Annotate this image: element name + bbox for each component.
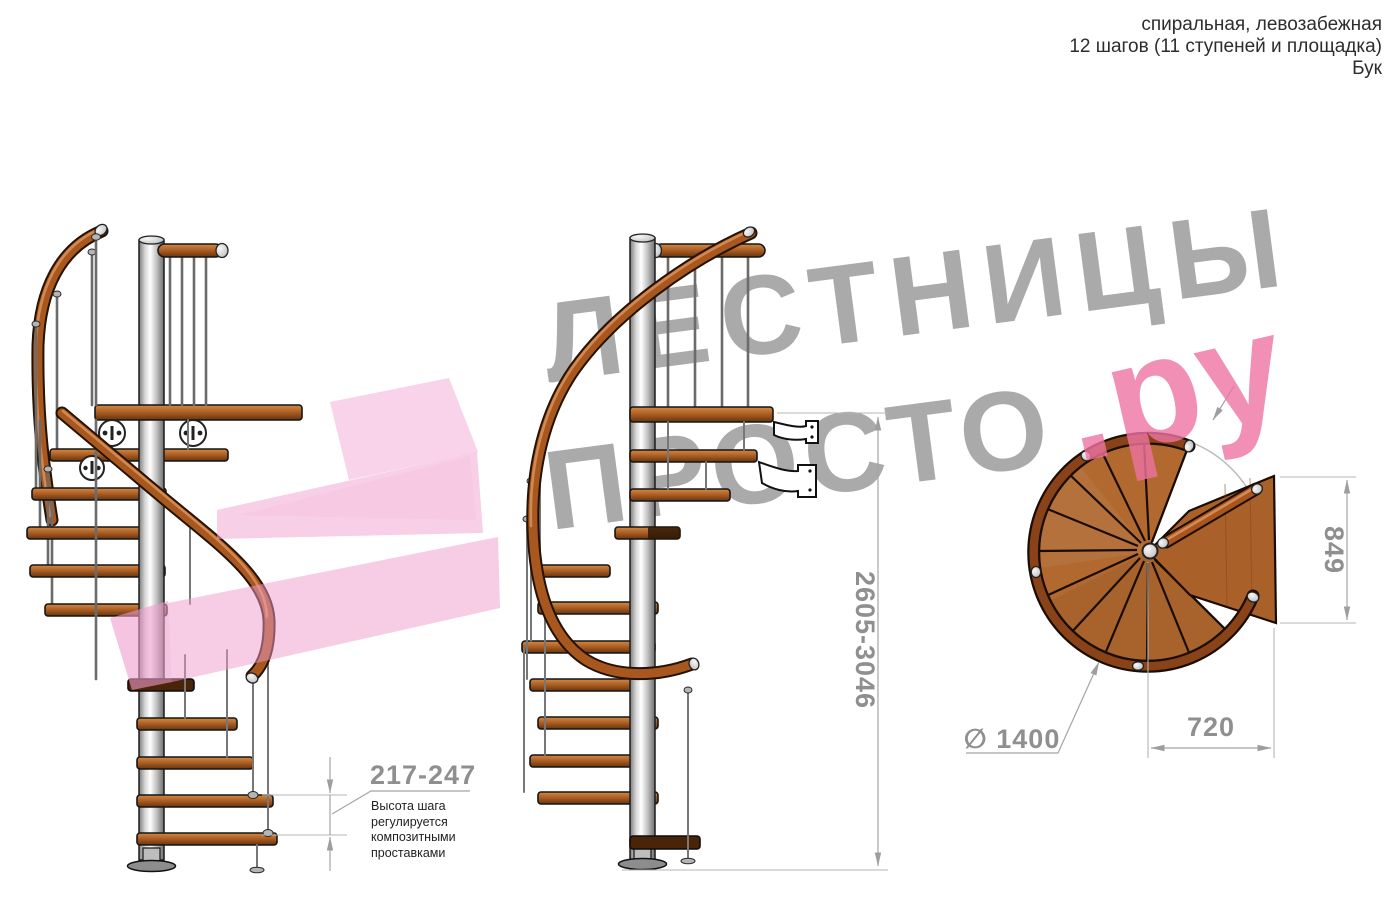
step-height-note: Высота шага регулируется композитными пр… (371, 799, 473, 861)
dimension-diameter: ∅ 1400 (964, 662, 1099, 754)
step-height-value: 217-247 (370, 760, 476, 791)
diameter-value: ∅ 1400 (964, 724, 1061, 754)
pole-top-cap-back (630, 234, 655, 242)
spec-material: Бук (1069, 58, 1382, 80)
side-view-back: 2605-3046 (522, 225, 888, 870)
landing-width-value: 720 (1187, 712, 1235, 742)
dimension-landing-depth: 849 (1280, 477, 1356, 623)
spec-type: спиральная, левозабежная (1069, 14, 1382, 36)
wall-brackets (759, 421, 818, 497)
spec-steps: 12 шагов (11 ступеней и площадка) (1069, 36, 1382, 58)
spec-header: спиральная, левозабежная 12 шагов (11 ст… (1069, 14, 1382, 80)
dimension-total-height: 2605-3046 (622, 413, 888, 870)
pole-top-cap (139, 236, 164, 244)
drawing-page: спиральная, левозабежная 12 шагов (11 ст… (0, 0, 1400, 907)
watermark-arrow (110, 378, 500, 690)
plan-center-pole (1143, 544, 1158, 559)
side-view-front (27, 222, 302, 873)
landing-depth-value: 849 (1319, 526, 1349, 574)
pole-base (128, 848, 176, 872)
platform-railing-back (651, 244, 766, 408)
total-height-value: 2605-3046 (850, 571, 880, 709)
landing-platform (95, 405, 302, 420)
center-pole-back (630, 238, 655, 860)
